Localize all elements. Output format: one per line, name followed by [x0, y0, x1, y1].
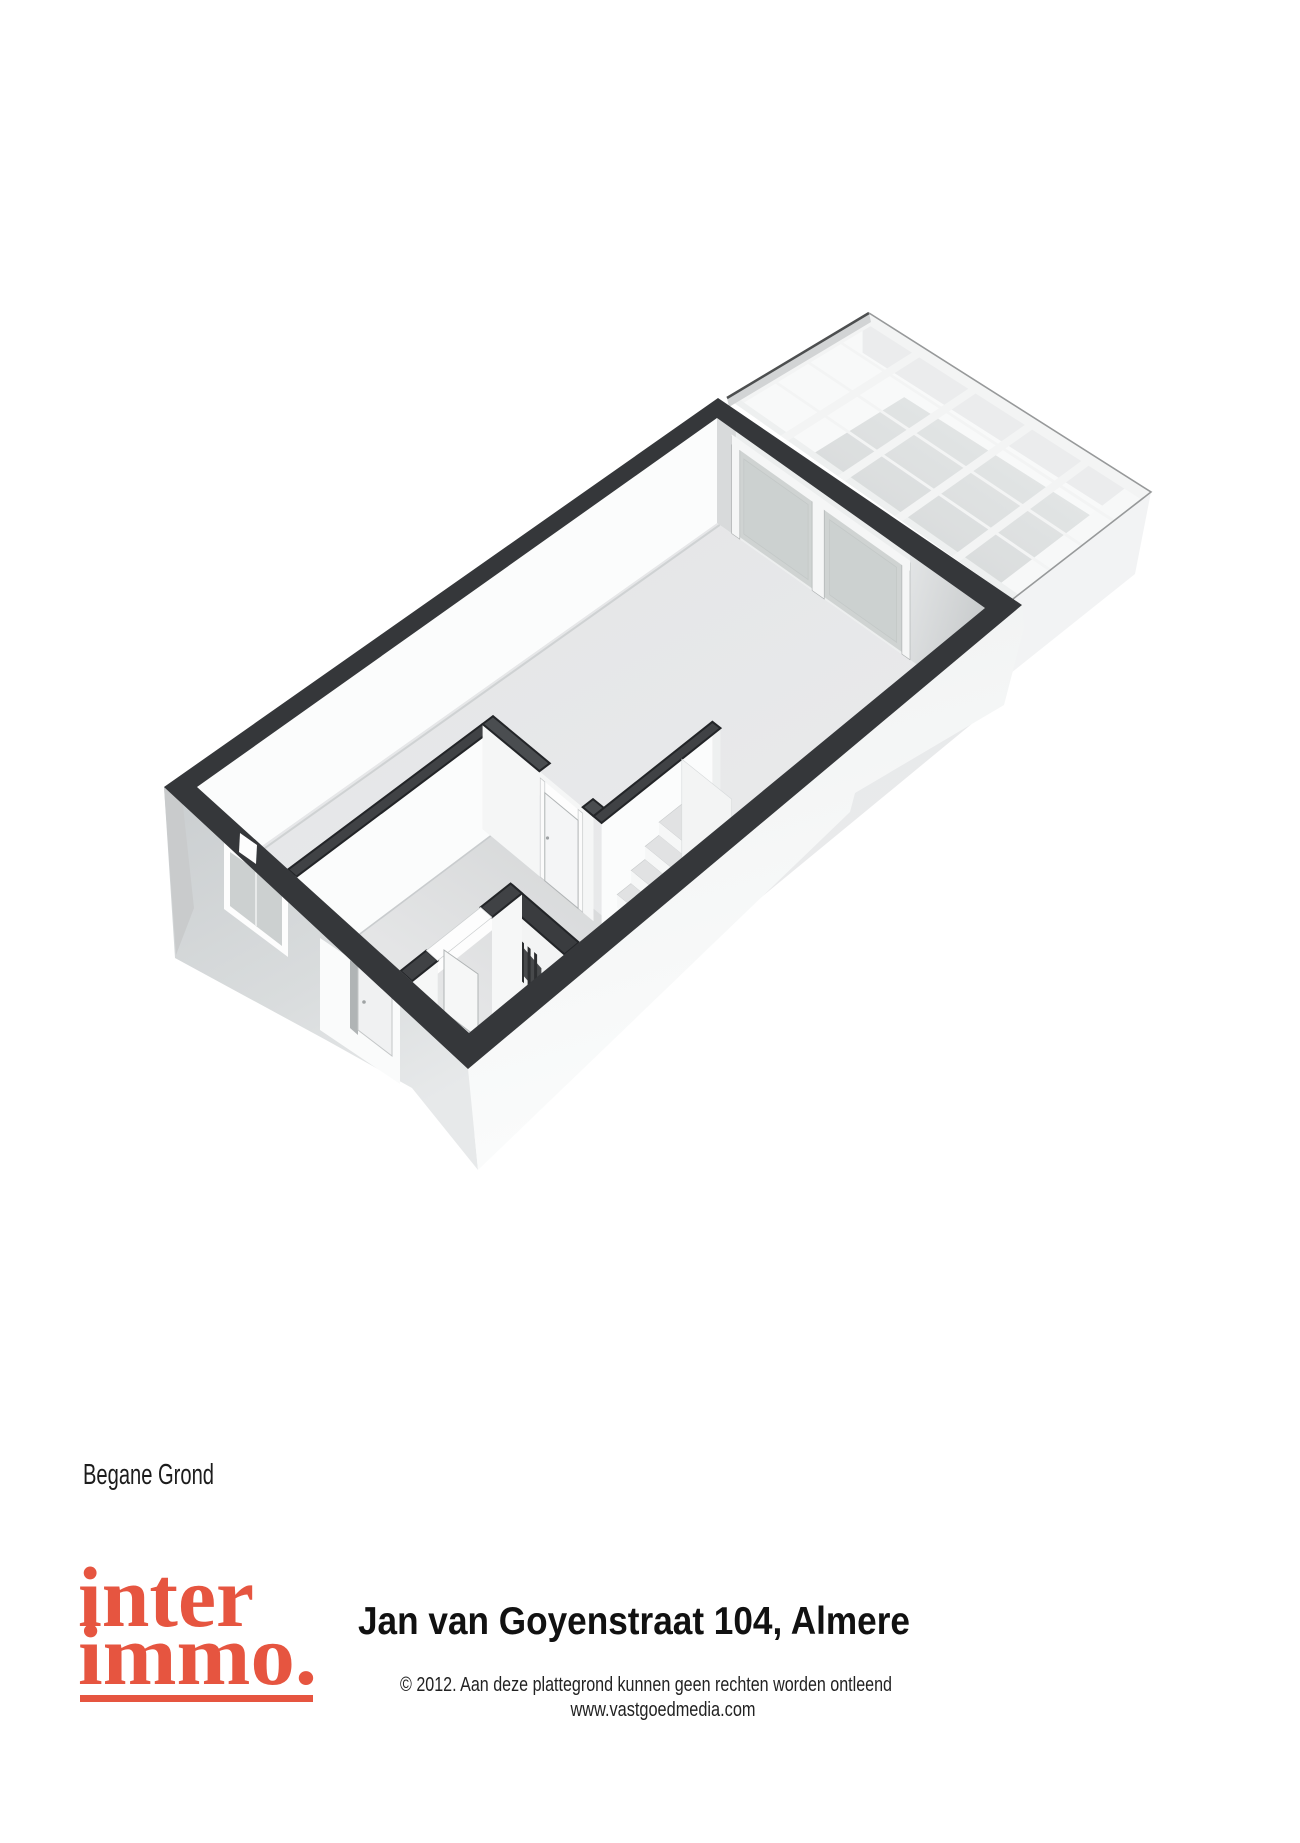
svg-text:Begane Grond: Begane Grond: [83, 1459, 214, 1491]
svg-text:© 2012. Aan deze plattegrond k: © 2012. Aan deze plattegrond kunnen geen…: [400, 1674, 892, 1696]
svg-text:Jan van Goyenstraat 104, Almer: Jan van Goyenstraat 104, Almere: [358, 1600, 910, 1643]
svg-text:immo.: immo.: [78, 1607, 317, 1703]
svg-text:www.vastgoedmedia.com: www.vastgoedmedia.com: [570, 1699, 756, 1721]
